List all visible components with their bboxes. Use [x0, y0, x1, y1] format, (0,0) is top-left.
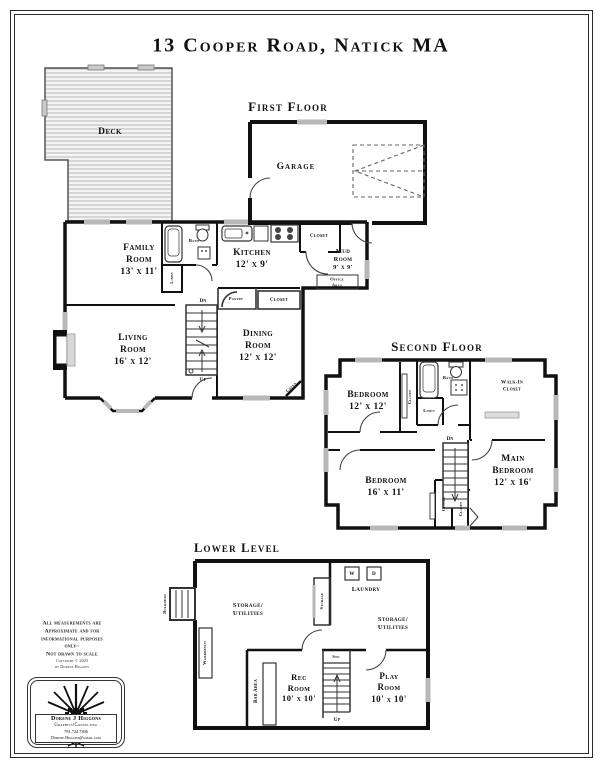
pantry-label: Pantry	[229, 296, 244, 302]
first-floor-bath-fixtures	[165, 225, 210, 262]
family-room-label: Family Room 13' x 11'	[120, 243, 157, 279]
deck-area	[42, 65, 172, 221]
storage-utilities-right-label: Storage/ Utilities	[378, 616, 408, 632]
linen-2-label: Linen	[423, 408, 435, 414]
bulkhead-label: Bulkhead	[162, 594, 168, 614]
lower-level-stairs	[323, 650, 350, 718]
deck-label: Deck	[98, 127, 122, 139]
office-area-label: Office Area	[330, 276, 344, 287]
designer-email: Dorene.Higgons@gmail.com	[36, 735, 116, 740]
living-room-label: Living Room 16' x 12'	[114, 333, 152, 369]
second-floor-heading: Second Floor	[391, 339, 483, 355]
first-floor-heading: First Floor	[248, 99, 328, 115]
laundry-label: Laundry	[352, 586, 381, 594]
bedroom-1-label: Bedroom 12' x 12'	[347, 390, 388, 414]
closet-2-label: Closet	[441, 497, 447, 512]
bulkhead-structure	[170, 588, 195, 620]
closet-top-label: Closet	[310, 233, 328, 240]
workbench-label: Workbench	[202, 641, 208, 665]
kitchen-label: Kitchen 12' x 9'	[233, 248, 271, 272]
stairs-up-2-label: Up	[334, 717, 341, 724]
storage-label: Storage	[319, 593, 325, 610]
closet-3-label: Closet	[458, 502, 464, 517]
designer-logo-text-box: Dorene J Higgons Graphics/Consulting 781…	[35, 714, 117, 743]
bar-area-label: Bar Area	[253, 679, 260, 703]
storage-utilities-left-label: Storage/ Utilities	[233, 602, 263, 618]
kitchen-fixtures	[222, 225, 298, 242]
closet-bottom-label: Closet	[270, 297, 288, 304]
copyright-text: Copyright © 2025 by Dorene Higgons	[55, 658, 89, 670]
mud-room-label: Mud Room 9' x 9'	[333, 248, 353, 272]
stairs-dn-1-label: Dn	[199, 298, 206, 305]
bath-1-label: Bath	[189, 238, 199, 244]
fireplace	[53, 330, 75, 370]
dining-room-label: Dining Room 12' x 12'	[239, 329, 277, 365]
designer-name: Dorene J Higgons	[36, 716, 116, 723]
dryer-label: D	[372, 571, 376, 578]
garage-door-symbol	[353, 145, 424, 197]
first-floor-stairs	[186, 305, 217, 375]
play-room-label: Play Room 10' x 10'	[371, 671, 406, 705]
walk-in-closet-label: Walk-In Closet	[501, 380, 523, 393]
page-title: 13 Cooper Road, Natick MA	[152, 34, 449, 59]
sto-closet-label: Sto	[332, 654, 339, 660]
floor-plan-page: 13 Cooper Road, Natick MA First Floor De…	[0, 0, 603, 768]
lower-level-heading: Lower Level	[194, 541, 280, 557]
linen-1-label: Linen	[169, 272, 175, 284]
rec-room-label: Rec Room 10' x 10'	[282, 672, 316, 704]
bay-window	[100, 398, 155, 411]
closet-1-label: Closet	[407, 390, 413, 405]
measurements-disclaimer: All measurements are Approximate and for…	[41, 620, 103, 659]
designer-logo: Dorene J Higgons Graphics/Consulting 781…	[27, 677, 125, 748]
stairs-up-1-label: Up	[200, 377, 207, 384]
main-bedroom-label: Main Bedroom 12' x 16'	[492, 454, 533, 490]
stairs-dn-2-label: Dn	[446, 436, 453, 443]
washer-label: W	[349, 571, 354, 578]
bath-2-label: Bath	[443, 375, 453, 381]
bedroom-2-label: Bedroom 16' x 11'	[365, 476, 406, 500]
garage-label: Garage	[277, 162, 316, 174]
